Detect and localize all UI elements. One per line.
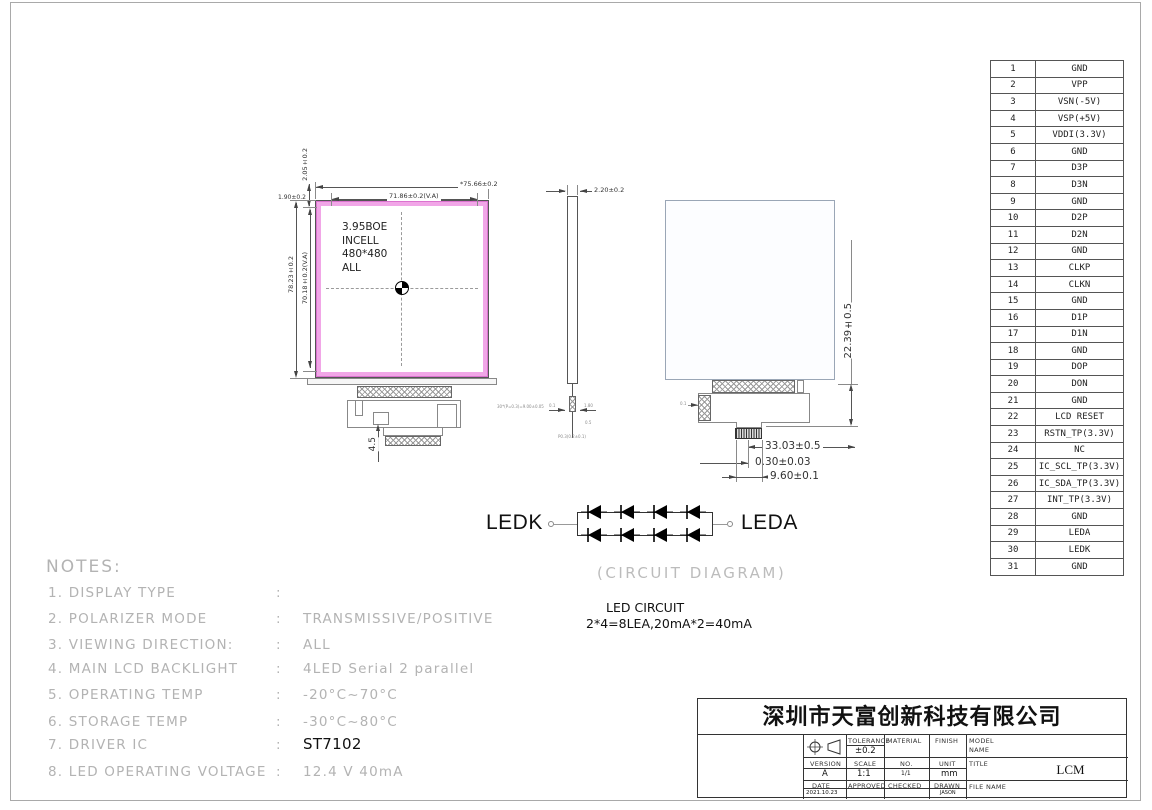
pin-row: 23 RSTN_TP(3.3V) — [991, 426, 1123, 443]
pin-number: 24 — [991, 443, 1036, 459]
pin-name: GND — [1036, 194, 1123, 210]
pin-row: 17 D1N — [991, 327, 1123, 344]
pin-name: GND — [1036, 61, 1123, 77]
diode-icon — [647, 503, 673, 521]
pin-row: 5 VDDI(3.3V) — [991, 127, 1123, 144]
pin-row: 1 GND — [991, 61, 1123, 78]
no-label: NO. — [900, 760, 913, 768]
pin-row: 8 D3N — [991, 177, 1123, 194]
pin-number: 23 — [991, 426, 1036, 442]
tolerance-label: TOLERANCE — [848, 737, 890, 745]
diode-icon — [647, 526, 673, 544]
drawn-value: JASON — [940, 790, 956, 796]
title-value: LCM — [1038, 762, 1103, 778]
note-item: 2. POLARIZER MODE : TRANSMISSIVE/POSITIV… — [48, 611, 608, 629]
title-block: 深圳市天富创新科技有限公司 TOLERANCE ±0.2 MATERIAL FI… — [697, 698, 1127, 798]
fpc-tab-outline — [383, 427, 443, 436]
pin-name: CLKN — [1036, 277, 1123, 293]
pin-number: 22 — [991, 409, 1036, 425]
pin-number: 5 — [991, 127, 1036, 143]
dim-fpc-length: 22.39±0.5 — [843, 303, 854, 359]
back-panel — [665, 200, 835, 380]
pin-number: 9 — [991, 194, 1036, 210]
back-fpc-bar — [797, 380, 804, 393]
micro-dim: P0.3(0.2±0.1) — [558, 434, 586, 439]
note-item: 7. DRIVER IC : ST7102 — [48, 737, 608, 755]
pin-row: 25 IC_SCL_TP(3.3V) — [991, 459, 1123, 476]
pin-row: 29 LEDA — [991, 526, 1123, 543]
pin-name: INT_TP(3.3V) — [1036, 492, 1123, 508]
led-circuit-title: LED CIRCUIT — [606, 600, 684, 615]
panel-spec-line: 3.95BOE — [342, 221, 387, 235]
back-connector — [735, 428, 762, 439]
pin-name: GND — [1036, 559, 1123, 576]
note-label: 4. MAIN LCD BACKLIGHT — [48, 661, 238, 677]
pin-assignment-table: 1 GND 2 VPP 3 VSN(-5V) 4 VSP(+5V) 5 VDDI… — [990, 60, 1124, 576]
pin-number: 12 — [991, 244, 1036, 260]
pin-number: 16 — [991, 310, 1036, 326]
pin-number: 1 — [991, 61, 1036, 77]
note-item: 4. MAIN LCD BACKLIGHT : 4LED Serial 2 pa… — [48, 661, 608, 679]
dim-a: 33.03±0.5 — [763, 440, 823, 453]
center-mark-icon — [395, 281, 409, 295]
note-label: 1. DISPLAY TYPE — [48, 585, 176, 601]
pin-name: GND — [1036, 244, 1123, 260]
drawing-sheet: 3.95BOE INCELL 480*480 ALL *75.66±0.2 71… — [0, 0, 1152, 810]
note-item: 1. DISPLAY TYPE : — [48, 585, 608, 603]
pin-row: 22 LCD RESET — [991, 409, 1123, 426]
back-stiffener — [698, 395, 711, 421]
pin-name: D2N — [1036, 227, 1123, 243]
pin-number: 10 — [991, 210, 1036, 226]
note-item: 5. OPERATING TEMP : -20°C~70°C — [48, 687, 608, 705]
pin-row: 30 LEDK — [991, 542, 1123, 559]
note-value: -30°C~80°C — [303, 714, 398, 730]
pin-name: CLKP — [1036, 260, 1123, 276]
pin-name: D3N — [1036, 177, 1123, 193]
dim-thickness: 2.20±0.2 — [592, 187, 626, 195]
pin-pitch-note: 30*(P=0.3)=9.00±0.05 — [497, 404, 544, 409]
pin-number: 21 — [991, 393, 1036, 409]
pin-row: 12 GND — [991, 244, 1123, 261]
circuit-diagram-caption: (CIRCUIT DIAGRAM) — [597, 564, 786, 582]
pin-number: 17 — [991, 327, 1036, 343]
notes-heading: NOTES: — [46, 557, 122, 577]
note-value: ST7102 — [303, 735, 362, 753]
finish-label: FINISH — [935, 737, 958, 745]
pin-row: 4 VSP(+5V) — [991, 111, 1123, 128]
pin-name: D2P — [1036, 210, 1123, 226]
pin-row: 14 CLKN — [991, 277, 1123, 294]
pin-number: 27 — [991, 492, 1036, 508]
note-colon: : — [276, 611, 282, 627]
date-label: DATE — [812, 782, 830, 790]
pin-row: 19 DOP — [991, 360, 1123, 377]
note-value: -20°C~70°C — [303, 687, 398, 703]
side-profile — [567, 196, 578, 384]
note-item: 8. LED OPERATING VOLTAGE : 12.4 V 40mA — [48, 764, 608, 782]
scale-label: SCALE — [854, 760, 876, 768]
pin-row: 31 GND — [991, 559, 1123, 576]
tolerance-value: ±0.2 — [855, 746, 876, 756]
note-label: 7. DRIVER IC — [48, 737, 148, 753]
dim-outer-height: 78.23±0.2 — [288, 256, 295, 293]
micro-dim: 0.5 — [585, 420, 591, 425]
pin-number: 14 — [991, 277, 1036, 293]
pin-row: 21 GND — [991, 393, 1123, 410]
pin-number: 3 — [991, 94, 1036, 110]
note-colon: : — [276, 661, 282, 677]
pin-number: 7 — [991, 161, 1036, 177]
date-value: 2021.10.23 — [806, 790, 838, 796]
dim-va-height: 70.18±0.2(V.A) — [302, 252, 309, 304]
pin-name: IC_SDA_TP(3.3V) — [1036, 476, 1123, 492]
pin-name: DON — [1036, 376, 1123, 392]
pin-name: VPP — [1036, 78, 1123, 94]
dim-c: 9.60±0.1 — [768, 470, 821, 483]
panel-ledge — [307, 378, 497, 385]
pin-number: 25 — [991, 459, 1036, 475]
pin-row: 15 GND — [991, 293, 1123, 310]
pin-row: 7 D3P — [991, 161, 1123, 178]
acf-bond-area — [357, 386, 452, 398]
scale-value: 1:1 — [857, 769, 871, 779]
pin-name: RSTN_TP(3.3V) — [1036, 426, 1123, 442]
pin-name: VSP(+5V) — [1036, 111, 1123, 127]
pin-row: 6 GND — [991, 144, 1123, 161]
pin-name: IC_SCL_TP(3.3V) — [1036, 459, 1123, 475]
diode-icon — [680, 503, 706, 521]
pin-number: 19 — [991, 360, 1036, 376]
pin-name: D1P — [1036, 310, 1123, 326]
ledk-label: LEDK — [486, 511, 543, 535]
note-colon: : — [276, 737, 282, 753]
pin-row: 16 D1P — [991, 310, 1123, 327]
diode-icon — [614, 503, 640, 521]
pin-number: 18 — [991, 343, 1036, 359]
pin-number: 28 — [991, 509, 1036, 525]
pin-row: 28 GND — [991, 509, 1123, 526]
version-value: A — [822, 769, 828, 779]
diode-icon — [581, 503, 607, 521]
pin-number: 4 — [991, 111, 1036, 127]
checked-label: CHECKED — [888, 782, 922, 790]
pin-name: GND — [1036, 144, 1123, 160]
company-name: 深圳市天富创新科技有限公司 — [698, 699, 1126, 735]
micro-dim: 0.1 — [680, 401, 686, 406]
diode-icon — [614, 526, 640, 544]
pin-number: 29 — [991, 526, 1036, 542]
unit-value: mm — [941, 769, 958, 779]
file-name-label: FILE NAME — [969, 783, 1006, 791]
version-label: VERSION — [810, 760, 841, 768]
pin-name: GND — [1036, 393, 1123, 409]
diode-icon — [680, 526, 706, 544]
material-label: MATERIAL — [887, 737, 922, 745]
pin-number: 11 — [991, 227, 1036, 243]
dim-tab-length: 4.5 — [369, 437, 379, 451]
pin-name: LCD RESET — [1036, 409, 1123, 425]
leda-label: LEDA — [741, 511, 798, 535]
drawn-label: DRAWN — [934, 782, 960, 790]
pin-row: 9 GND — [991, 194, 1123, 211]
pin-number: 30 — [991, 542, 1036, 558]
note-colon: : — [276, 714, 282, 730]
model-name-label: MODEL NAME — [969, 737, 999, 755]
panel-spec-line: INCELL — [342, 235, 387, 249]
pin-name: GND — [1036, 293, 1123, 309]
pin-row: 2 VPP — [991, 78, 1123, 95]
pin-row: 20 DON — [991, 376, 1123, 393]
pin-name: LEDK — [1036, 542, 1123, 558]
pin-number: 15 — [991, 293, 1036, 309]
note-label: 2. POLARIZER MODE — [48, 611, 207, 627]
pin-number: 31 — [991, 559, 1036, 576]
pin-name: VSN(-5V) — [1036, 94, 1123, 110]
note-colon: : — [276, 585, 282, 601]
fpc-strip — [355, 400, 363, 416]
fpc-tab-stiffener — [385, 436, 441, 446]
back-acf-area — [712, 380, 795, 393]
micro-dim: 0.1 — [549, 403, 555, 408]
note-colon: : — [276, 764, 282, 780]
dim-top-margin: 2.05±0.2 — [302, 148, 309, 181]
pin-number: 26 — [991, 476, 1036, 492]
note-label: 6. STORAGE TEMP — [48, 714, 188, 730]
note-value: 4LED Serial 2 parallel — [303, 661, 474, 677]
no-value: 1/1 — [901, 770, 911, 777]
diode-icon — [581, 526, 607, 544]
pin-row: 27 INT_TP(3.3V) — [991, 492, 1123, 509]
note-label: 5. OPERATING TEMP — [48, 687, 204, 703]
pin-name: GND — [1036, 343, 1123, 359]
panel-spec-line: ALL — [342, 262, 387, 276]
note-item: 3. VIEWING DIRECTION: : ALL — [48, 637, 608, 655]
pin-row: 24 NC — [991, 443, 1123, 460]
note-colon: : — [276, 637, 282, 653]
note-label: 3. VIEWING DIRECTION: — [48, 637, 234, 653]
pin-row: 26 IC_SDA_TP(3.3V) — [991, 476, 1123, 493]
led-circuit-spec: 2*4=8LEA,20mA*2=40mA — [586, 616, 752, 631]
note-value: TRANSMISSIVE/POSITIVE — [303, 611, 494, 627]
approved-label: APPROVED — [848, 782, 886, 790]
pin-name: DOP — [1036, 360, 1123, 376]
pin-number: 6 — [991, 144, 1036, 160]
pin-name: GND — [1036, 509, 1123, 525]
panel-spec-line: 480*480 — [342, 248, 387, 262]
note-colon: : — [276, 687, 282, 703]
note-value: 12.4 V 40mA — [303, 764, 404, 780]
pin-row: 10 D2P — [991, 210, 1123, 227]
pin-name: D1N — [1036, 327, 1123, 343]
side-fpc-stiffener — [569, 396, 576, 412]
pin-name: D3P — [1036, 161, 1123, 177]
dim-outer-width: *75.66±0.2 — [458, 181, 500, 189]
panel-spec-text: 3.95BOE INCELL 480*480 ALL — [342, 221, 387, 275]
pin-name: LEDA — [1036, 526, 1123, 542]
pin-row: 18 GND — [991, 343, 1123, 360]
fpc-component — [437, 404, 457, 428]
note-value: ALL — [303, 637, 331, 653]
pin-row: 3 VSN(-5V) — [991, 94, 1123, 111]
projection-symbol-icon — [806, 738, 844, 756]
micro-dim: 1.80 — [584, 403, 593, 408]
pin-name: VDDI(3.3V) — [1036, 127, 1123, 143]
title-label: TITLE — [969, 760, 988, 768]
pin-number: 20 — [991, 376, 1036, 392]
unit-label: UNIT — [939, 760, 956, 768]
pin-number: 13 — [991, 260, 1036, 276]
back-fpc-body — [698, 393, 810, 423]
note-label: 8. LED OPERATING VOLTAGE — [48, 764, 267, 780]
note-item: 6. STORAGE TEMP : -30°C~80°C — [48, 714, 608, 732]
pin-number: 2 — [991, 78, 1036, 94]
pin-name: NC — [1036, 443, 1123, 459]
pin-number: 8 — [991, 177, 1036, 193]
pin-row: 11 D2N — [991, 227, 1123, 244]
dim-va-width: 71.86±0.2(V.A) — [387, 193, 441, 201]
pin-row: 13 CLKP — [991, 260, 1123, 277]
